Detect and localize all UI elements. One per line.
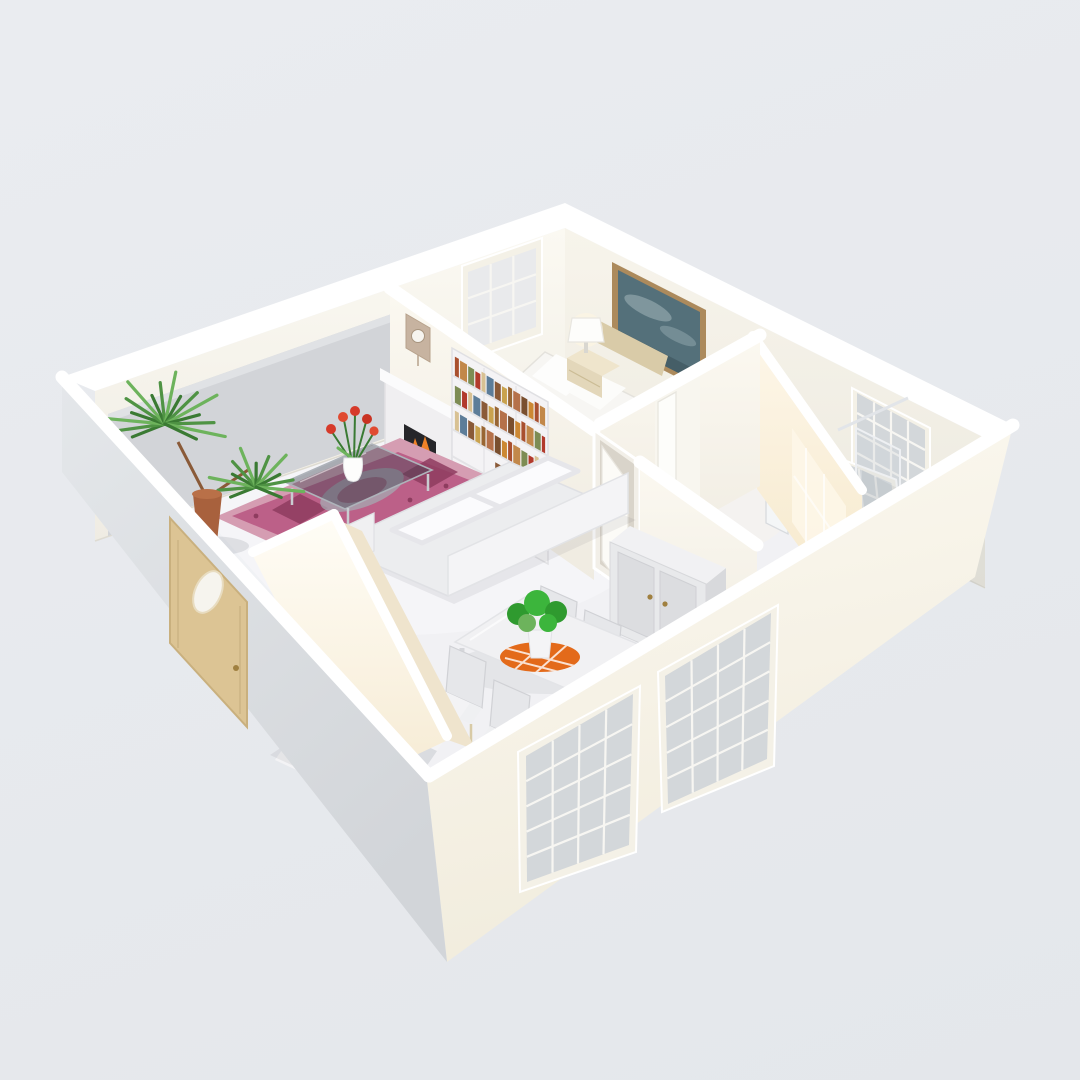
tulip-1	[326, 424, 336, 434]
tulip-5	[369, 426, 378, 435]
clock-dial	[412, 330, 425, 343]
vase	[344, 458, 363, 482]
wardrobe-knob-right	[662, 601, 667, 606]
centerpiece-pot	[528, 630, 552, 658]
lamp-shade	[568, 318, 604, 342]
tulip-4	[362, 414, 372, 424]
tulip-2	[338, 412, 348, 422]
tulip-3	[350, 406, 360, 416]
wardrobe-knob-left	[647, 594, 652, 599]
floorplan-3d-render	[0, 0, 1080, 1080]
door-knob	[233, 665, 239, 671]
floorplan-render-stage	[0, 0, 1080, 1080]
